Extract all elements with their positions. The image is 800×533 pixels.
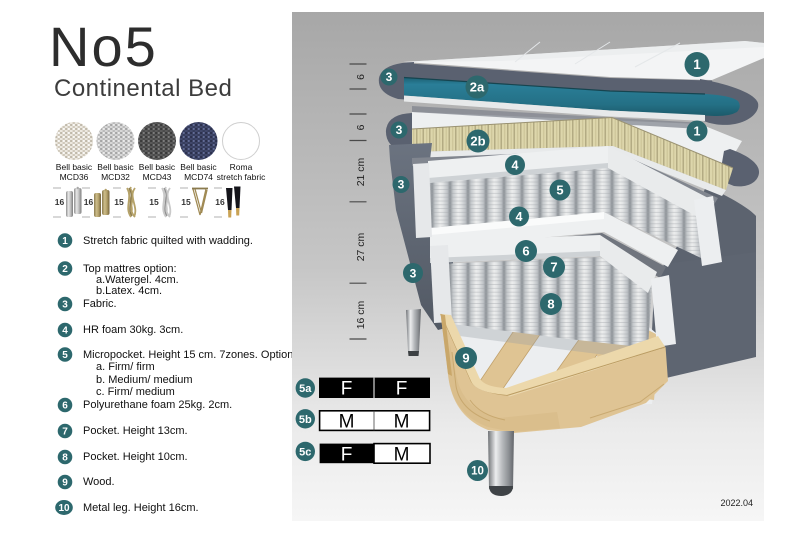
svg-text:F: F: [341, 379, 353, 400]
svg-text:16 cm: 16 cm: [355, 300, 367, 329]
svg-text:2022.04: 2022.04: [720, 498, 753, 508]
svg-text:5: 5: [556, 183, 563, 198]
svg-text:6: 6: [522, 244, 529, 259]
svg-text:5a: 5a: [299, 383, 312, 395]
svg-text:1: 1: [693, 57, 701, 72]
svg-text:3: 3: [398, 178, 405, 192]
svg-text:2b: 2b: [470, 134, 485, 149]
svg-text:3: 3: [386, 70, 393, 84]
svg-text:M: M: [394, 412, 410, 433]
svg-text:M: M: [339, 412, 355, 433]
svg-text:7: 7: [550, 260, 557, 275]
svg-text:M: M: [394, 444, 410, 465]
svg-text:1: 1: [694, 125, 701, 139]
svg-text:27 cm: 27 cm: [355, 232, 367, 261]
svg-text:3: 3: [396, 123, 403, 137]
svg-text:3: 3: [410, 267, 417, 281]
svg-text:4: 4: [516, 210, 523, 224]
svg-text:6: 6: [355, 74, 367, 80]
svg-text:F: F: [396, 379, 408, 400]
svg-text:21 cm: 21 cm: [355, 157, 367, 186]
svg-text:5c: 5c: [299, 446, 311, 458]
svg-text:4: 4: [512, 159, 519, 173]
svg-text:6: 6: [355, 124, 367, 130]
svg-text:9: 9: [462, 351, 469, 366]
svg-text:F: F: [341, 444, 353, 465]
svg-text:5b: 5b: [299, 414, 312, 426]
svg-text:10: 10: [471, 466, 484, 478]
svg-text:8: 8: [547, 297, 554, 312]
svg-text:2a: 2a: [470, 80, 485, 95]
